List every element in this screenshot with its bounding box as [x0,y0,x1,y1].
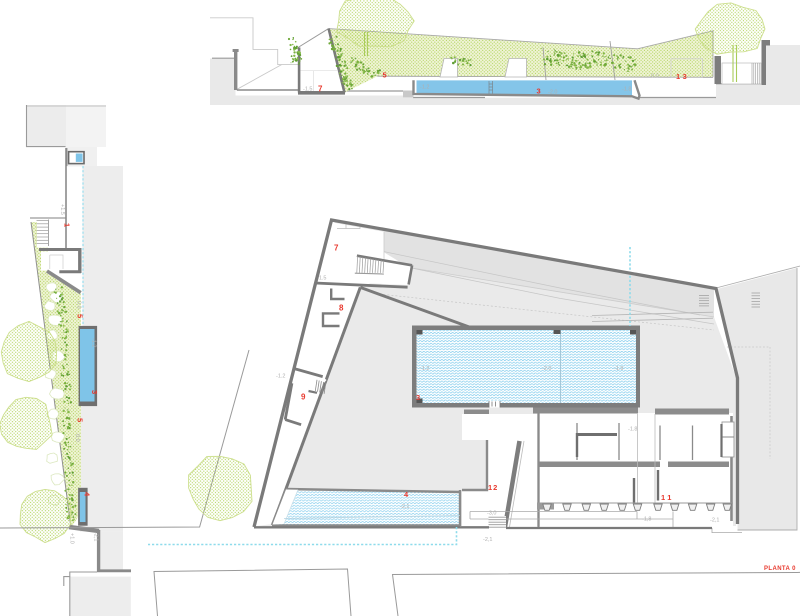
svg-text:3: 3 [90,390,99,394]
svg-text:-1.2: -1.2 [91,338,97,347]
svg-text:0.0: 0.0 [651,74,659,80]
svg-text:+1.5: +1.5 [59,204,65,215]
svg-text:7: 7 [334,244,339,253]
svg-text:+1.0: +1.0 [69,533,75,544]
svg-text:-2.0: -2.0 [542,366,551,372]
svg-text:-2.0: -2.0 [548,90,557,96]
svg-text:-3,0: -3,0 [487,511,496,517]
svg-text:-1.2: -1.2 [276,374,285,380]
svg-text:-1.8: -1.8 [622,87,631,93]
svg-text:-2,1: -2,1 [400,504,409,510]
svg-text:-2,1: -2,1 [93,532,99,541]
svg-text:0.0: 0.0 [76,301,82,309]
svg-text:11: 11 [661,493,674,502]
svg-text:-2,1: -2,1 [483,537,492,543]
svg-text:-1.9: -1.9 [614,366,623,372]
svg-text:12: 12 [488,483,498,492]
svg-text:8: 8 [339,304,344,313]
svg-text:-1.5: -1.5 [303,87,312,93]
svg-text:-2,1: -2,1 [710,518,719,524]
svg-text:-1.2: -1.2 [420,366,429,372]
svg-text:3: 3 [416,393,420,402]
svg-text:0.0: 0.0 [74,434,80,442]
svg-text:-1.2: -1.2 [420,85,429,91]
svg-text:5: 5 [76,418,85,422]
svg-text:-1.8: -1.8 [628,427,637,433]
svg-text:-1,8: -1,8 [642,517,651,523]
svg-text:13: 13 [676,72,689,81]
svg-text:5: 5 [383,71,387,80]
svg-text:1: 1 [63,223,72,227]
svg-text:9: 9 [301,393,306,402]
svg-text:5: 5 [76,314,85,318]
svg-text:7: 7 [318,85,323,94]
svg-text:PLANTA 0: PLANTA 0 [764,566,796,572]
svg-text:3: 3 [537,87,541,96]
